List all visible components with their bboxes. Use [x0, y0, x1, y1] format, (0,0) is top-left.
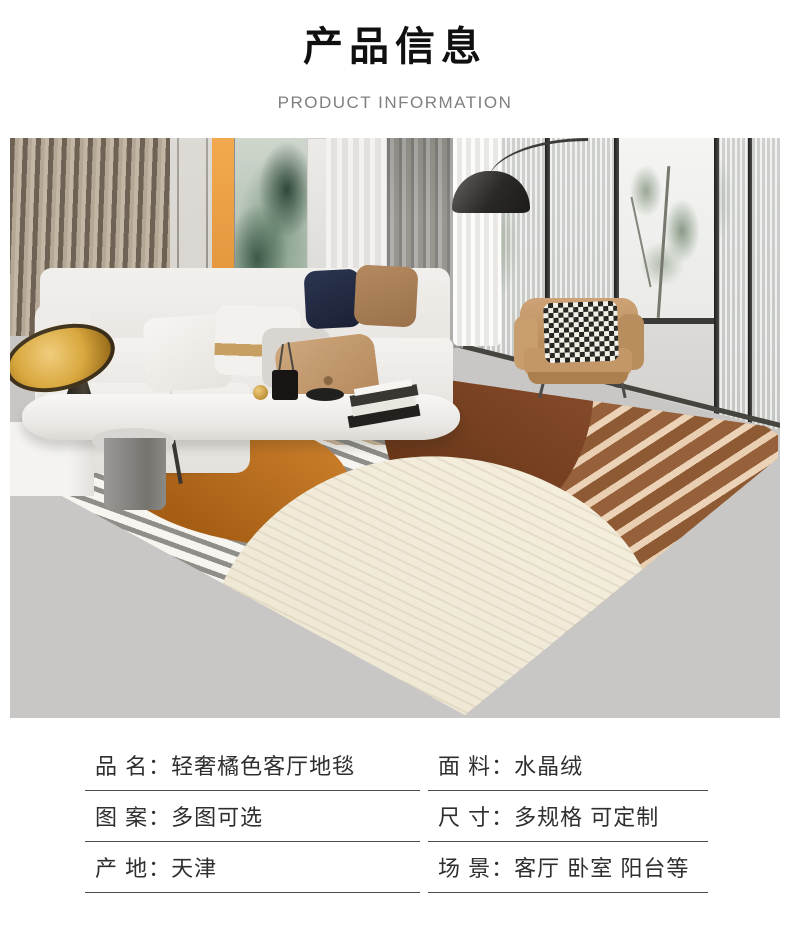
- page-title: 产品信息: [0, 24, 790, 70]
- spec-value: 天津: [171, 851, 217, 883]
- spec-value: 水晶绒: [514, 749, 583, 781]
- spec-label: 场 景：: [438, 851, 514, 883]
- spec-label: 产 地：: [95, 851, 171, 883]
- spec-label: 图 案：: [95, 800, 171, 832]
- spec-value: 客厅 卧室 阳台等: [514, 851, 689, 883]
- spec-label: 品 名：: [95, 749, 171, 781]
- coffee-mug: [272, 370, 298, 400]
- spec-cell-size: 尺 寸：多规格 可定制: [428, 791, 708, 842]
- armchair-base: [528, 372, 628, 384]
- spec-table: 品 名：轻奢橘色客厅地毯 面 料：水晶绒 图 案：多图可选 尺 寸：多规格 可定…: [85, 740, 708, 893]
- decor-bowl: [306, 388, 344, 401]
- spec-value: 多图可选: [171, 800, 263, 832]
- pillow-brown: [353, 264, 418, 327]
- spec-cell-scene: 场 景：客厅 卧室 阳台等: [428, 842, 708, 893]
- product-photo: [10, 138, 780, 718]
- spec-value: 多规格 可定制: [514, 800, 659, 832]
- page-header: 产品信息 PRODUCT INFORMATION: [0, 0, 790, 114]
- spec-label: 尺 寸：: [438, 800, 514, 832]
- spec-cell-name: 品 名：轻奢橘色客厅地毯: [85, 740, 420, 791]
- pedestal-table-base: [104, 438, 166, 510]
- page-subtitle: PRODUCT INFORMATION: [0, 92, 790, 114]
- spec-cell-pattern: 图 案：多图可选: [85, 791, 420, 842]
- pillow-navy: [304, 269, 363, 330]
- decor-gold-ball: [253, 385, 268, 400]
- houndstooth-pillow: [543, 301, 619, 364]
- spec-label: 面 料：: [438, 749, 514, 781]
- spec-cell-origin: 产 地：天津: [85, 842, 420, 893]
- spec-cell-fabric: 面 料：水晶绒: [428, 740, 708, 791]
- spec-value: 轻奢橘色客厅地毯: [171, 749, 355, 781]
